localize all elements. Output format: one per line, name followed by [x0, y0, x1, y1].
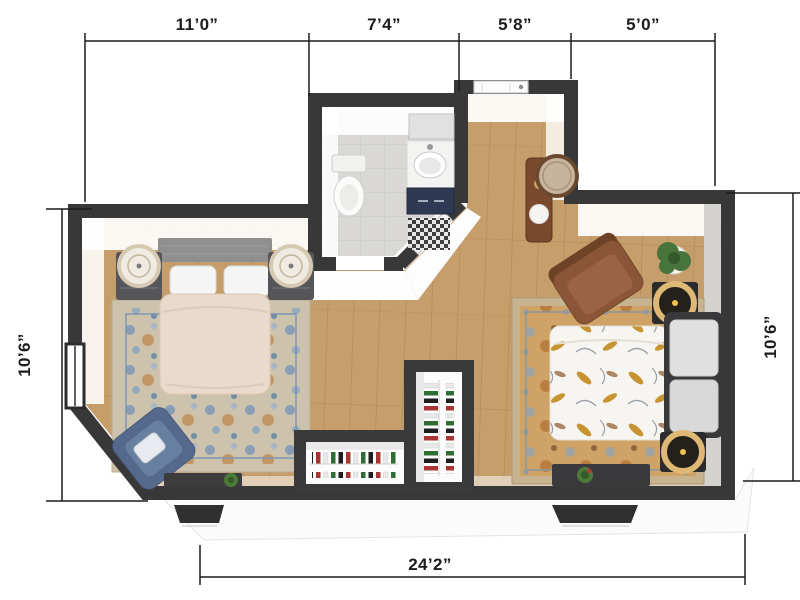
headboard — [158, 238, 272, 262]
entry-door — [474, 81, 528, 93]
slab-window-notch-left — [174, 505, 224, 523]
floor-plan-canvas: 11’0” 7’4” 5’8” 5’0” 10’6” 10’6” 24’2” — [0, 0, 800, 600]
door-handle-icon — [519, 85, 523, 89]
sofa — [664, 312, 724, 438]
faucet-icon — [427, 144, 433, 150]
dim-label-right: 10’6” — [761, 315, 780, 359]
dim-label-top-2: 7’4” — [367, 15, 401, 34]
vase — [530, 205, 549, 224]
bath-mat — [408, 218, 450, 250]
dimension-right: 10’6” — [726, 193, 800, 481]
nightstand-right — [268, 246, 314, 300]
vanity-cabinet — [407, 188, 454, 214]
nightstand-left — [116, 246, 162, 300]
closet-vertical — [404, 360, 474, 493]
dim-label-top-3: 5’8” — [498, 15, 532, 34]
vanity-sink — [407, 114, 454, 250]
toilet — [332, 155, 366, 216]
west-window — [66, 344, 84, 408]
dimension-bottom: 24’2” — [200, 534, 745, 585]
closet-clothes-icon — [312, 452, 396, 478]
queen-bed — [158, 238, 272, 394]
floral-daybed — [550, 326, 668, 440]
round-mirror-icon — [537, 156, 577, 196]
media-console — [552, 464, 650, 486]
floor-plan-page: 11’0” 7’4” 5’8” 5’0” 10’6” 10’6” 24’2” — [0, 0, 800, 600]
slab-window-notch-right — [552, 505, 638, 523]
side-table-south — [660, 432, 706, 472]
dim-label-top-1: 11’0” — [176, 15, 219, 34]
vanity-mirror — [409, 114, 454, 139]
pillow — [224, 266, 270, 296]
dim-label-bottom: 24’2” — [408, 555, 452, 574]
bedroom-bench — [164, 473, 242, 487]
dim-label-top-4: 5’0” — [626, 15, 660, 34]
closet-bottom — [294, 430, 416, 493]
sofa-cushion — [670, 380, 718, 432]
pillow — [170, 266, 216, 296]
dim-label-left: 10’6” — [15, 333, 34, 377]
sofa-cushion — [670, 320, 718, 376]
